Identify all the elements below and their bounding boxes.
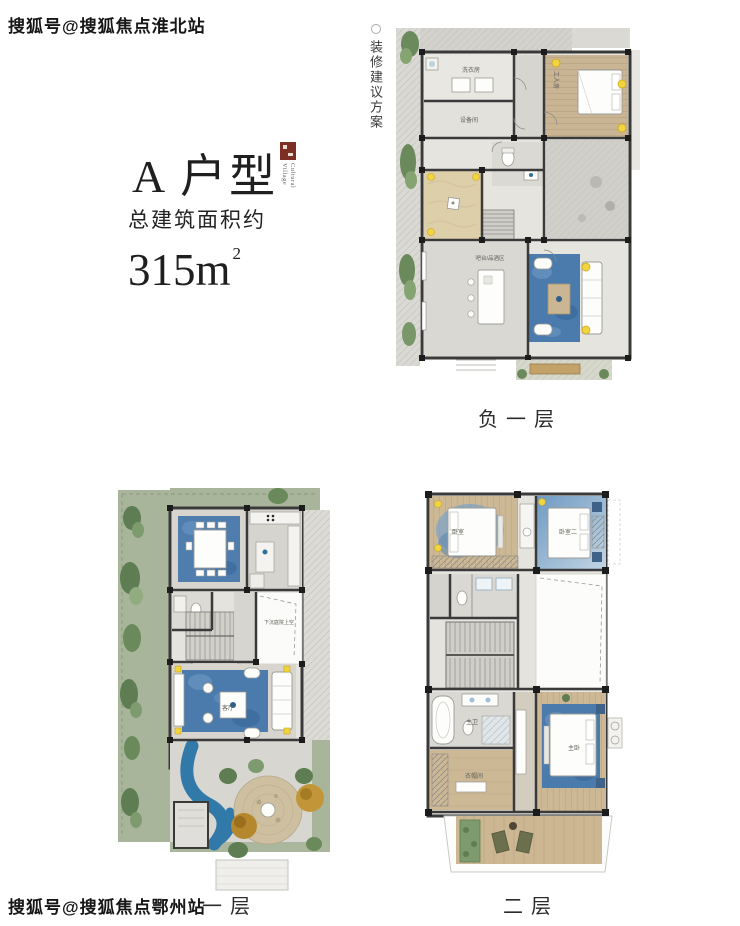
first-void (256, 592, 302, 664)
first-storage (174, 802, 208, 848)
roof-edge (608, 500, 620, 564)
room-label: 卧室二 (559, 528, 577, 536)
second-void (536, 574, 606, 688)
logo-text: Cultural Village (280, 163, 296, 188)
logo-line2: Village (281, 163, 288, 185)
basement-worker-room (544, 55, 628, 137)
basement-sunken-court (546, 140, 628, 238)
first-floor-plan: 下沉庭院上空 客厅 (116, 480, 344, 892)
watermark-top: 搜狐号@搜狐焦点淮北站 (8, 12, 206, 37)
second-terrace (444, 816, 612, 872)
basement-laundry-room (424, 55, 514, 101)
ac-platform (608, 718, 622, 748)
logo-line1: Cultural (289, 163, 296, 188)
second-floor-plan: 卧室 卧室二 主卫 衣帽间 主卧 (416, 482, 646, 876)
second-bathroom (430, 574, 518, 618)
second-desk (520, 504, 534, 548)
room-label: 工人房 (552, 71, 560, 89)
decoration-note: 装修建议方案 (366, 24, 385, 130)
first-living-room (172, 664, 296, 740)
basement-floor-plan: 洗衣房 设备间 工人房 吧台/品酒区 (396, 22, 644, 394)
basement-bathroom (492, 142, 544, 186)
second-stairs (446, 622, 514, 688)
first-side-paving-hatch (302, 510, 330, 764)
decoration-note-text: 装修建议方案 (366, 40, 385, 130)
floor-plan-page: 搜狐号@搜狐焦点淮北站 搜狐号@搜狐焦点鄂州站 A 户型 Cultural Vi… (0, 0, 740, 926)
seal-icon (280, 142, 296, 160)
second-closet-room (430, 750, 514, 810)
basement-tatami-room (424, 170, 482, 240)
room-label: 吧台/品酒区 (475, 254, 505, 262)
first-corridor (234, 592, 256, 662)
first-courtyard (170, 740, 330, 890)
second-corridor (514, 692, 536, 812)
basement-family-room (528, 254, 602, 342)
area-value: 315m2 (128, 244, 241, 296)
caption-basement: 负一层 (396, 403, 644, 432)
room-label: 主卧 (568, 744, 580, 752)
second-master-bedroom (536, 692, 606, 812)
room-label: 洗衣房 (462, 66, 480, 74)
cultural-village-logo: Cultural Village (278, 142, 298, 188)
basement-hall (514, 55, 544, 138)
unit-type-title: A 户型 (132, 140, 278, 206)
area-subtitle: 总建筑面积约 (128, 204, 266, 234)
room-label: 卧室 (452, 528, 464, 536)
circle-marker-icon (371, 24, 381, 34)
room-label: 客厅 (222, 704, 234, 712)
basement-terrace (456, 360, 612, 380)
area-exponent: 2 (233, 244, 242, 263)
first-dining-room (172, 510, 246, 590)
second-bedroom1 (430, 496, 518, 570)
first-entry-steps (216, 860, 288, 890)
basement-stairs (482, 210, 514, 240)
room-label: 设备间 (460, 116, 478, 124)
room-label: 主卫 (466, 718, 478, 726)
caption-second: 二层 (416, 890, 646, 919)
room-label: 下沉庭院上空 (264, 619, 294, 626)
first-kitchen (248, 510, 302, 590)
room-label: 衣帽间 (465, 772, 483, 780)
caption-first: 一层 (116, 890, 344, 919)
